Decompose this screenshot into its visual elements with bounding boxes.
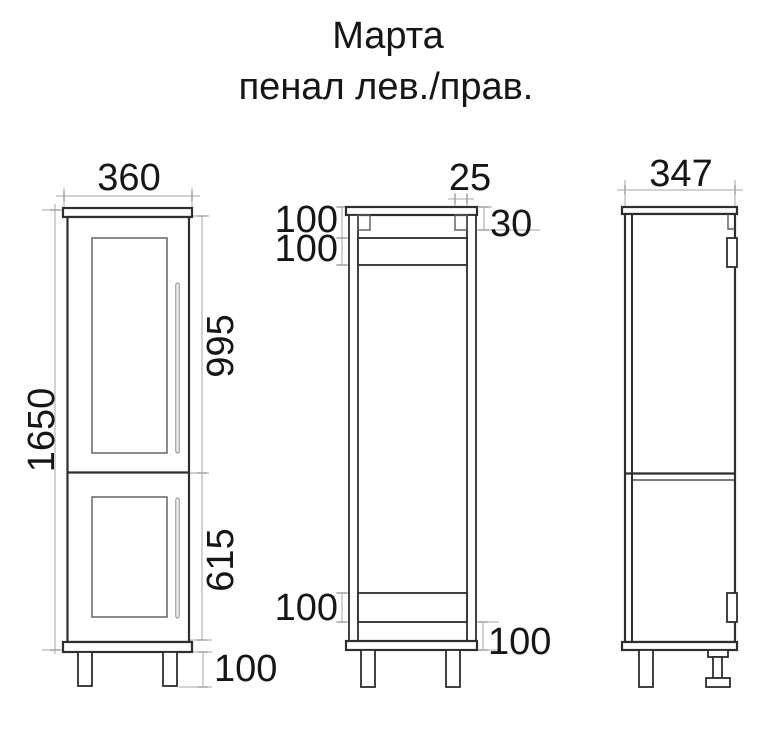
section-bottom-rail-label: 100 <box>275 587 338 629</box>
section-bottom-rail <box>358 593 467 622</box>
side-hinge-bottom <box>727 593 737 622</box>
front-upper-door-label: 995 <box>200 314 242 377</box>
side-depth-label: 347 <box>649 153 712 195</box>
front-width-label: 360 <box>97 157 160 199</box>
section-view: 100 100 25 30 100 <box>275 157 552 687</box>
front-door-dimensions: 995 615 <box>189 216 242 640</box>
section-bottom-offset-label: 100 <box>488 621 551 663</box>
side-foot-stem <box>713 657 722 678</box>
side-cabinet <box>622 207 737 687</box>
section-cabinet <box>346 207 477 687</box>
drawing-title: Марта пенал лев./прав. <box>239 15 534 108</box>
front-leg-right <box>163 652 177 686</box>
title-line-1: Марта <box>332 15 444 57</box>
side-foot-base <box>706 678 730 687</box>
section-top-rail-label: 100 <box>275 228 338 270</box>
front-top-panel <box>63 208 192 217</box>
section-cleat-width-dimension: 25 <box>448 157 491 213</box>
front-upper-door-handle <box>176 283 179 453</box>
front-height-dimension: 1650 <box>21 204 66 654</box>
side-depth-dimension: 347 <box>617 153 743 206</box>
section-cleat-left <box>358 215 370 230</box>
front-lower-door-handle <box>176 498 179 618</box>
section-cleat-right <box>455 215 467 230</box>
front-cabinet <box>63 208 192 686</box>
front-leg-dimension: 100 <box>179 648 277 690</box>
drawing-page: Марта пенал лев./прав. 360 1650 <box>0 0 762 749</box>
section-top-panel <box>346 207 477 215</box>
section-bottom-rail-dimension: 100 <box>275 587 358 629</box>
section-bottom-panel <box>346 641 477 650</box>
side-bottom-panel <box>622 642 737 650</box>
front-plinth <box>63 642 192 652</box>
side-view: 347 <box>617 153 743 687</box>
front-carcass <box>68 217 190 642</box>
side-foot-plate <box>708 650 728 657</box>
side-hinge-top <box>727 238 737 267</box>
front-height-label: 1650 <box>21 388 63 473</box>
section-top-rail <box>358 238 467 265</box>
title-line-2: пенал лев./прав. <box>239 66 534 108</box>
side-adjustable-foot <box>706 650 730 687</box>
section-side-panel-right <box>467 215 476 642</box>
section-cleat-height-label: 30 <box>490 203 532 245</box>
front-view: 360 1650 995 615 <box>21 157 277 690</box>
section-bottom-offset-dimension: 100 <box>467 621 551 663</box>
front-leg-left <box>78 652 92 686</box>
front-leg-label: 100 <box>214 648 277 690</box>
front-width-dimension: 360 <box>56 157 200 207</box>
technical-drawing: Марта пенал лев./прав. 360 1650 <box>0 0 762 749</box>
section-leg-left <box>361 650 375 687</box>
front-lower-door-label: 615 <box>200 528 242 591</box>
side-leg <box>639 650 653 687</box>
side-carcass <box>625 214 735 642</box>
section-leg-right <box>446 650 460 687</box>
section-cleat-width-label: 25 <box>449 157 491 199</box>
section-side-panel-left <box>349 215 358 642</box>
